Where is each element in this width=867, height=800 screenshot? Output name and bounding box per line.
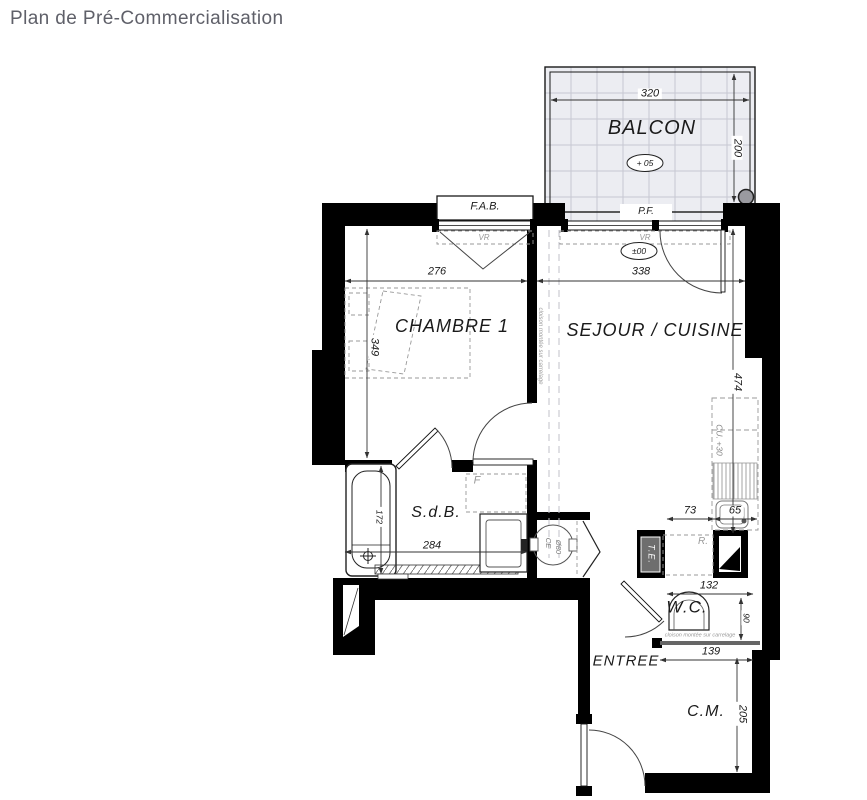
dim-entree-width: 139 (699, 647, 723, 658)
water-heater-label: CE (544, 538, 552, 548)
room-label-balcon: BALCON (608, 118, 696, 138)
door-wc (621, 581, 664, 637)
dim-chambre-height: 349 (369, 335, 380, 359)
dim-balcon-width: 320 (638, 89, 662, 100)
shutter-label-left: VR (478, 234, 489, 242)
room-label-cm: C.M. (687, 704, 725, 720)
opening-label-pf: P.F. (635, 207, 657, 217)
room-label-sdb: S.d.B. (411, 505, 461, 521)
level-main: ±00 (632, 247, 646, 256)
dim-kitchen-right: 65 (726, 506, 744, 517)
opening-label-fab: F.A.B. (470, 202, 499, 213)
room-label-entree: ENTREE (593, 654, 660, 669)
room-label-chambre: CHAMBRE 1 (395, 317, 509, 335)
bathtub (346, 464, 396, 576)
page-title: Plan de Pré-Commercialisation (10, 8, 283, 30)
partition-note-horizontal: cloison montée sur carrelage (665, 633, 736, 639)
closet-label: F (474, 476, 481, 487)
dim-sejour-width: 338 (629, 267, 653, 278)
tiled-partition-line (660, 641, 760, 645)
dim-sejour-height: 474 (732, 370, 743, 394)
room-label-wc: W.C. (666, 599, 707, 616)
kitchen-unit-label: CU. +30 (715, 424, 724, 455)
water-heater (530, 521, 600, 577)
dim-balcon-height: 200 (732, 136, 743, 160)
door-sdb (396, 428, 452, 469)
electrical-panel-label: T.E. (647, 544, 656, 564)
shutter-label-right: VR (639, 234, 650, 242)
level-balcon: + 05 (637, 159, 654, 168)
floor-plan-page: Plan de Pré-Commercialisation BALCON CHA… (0, 0, 867, 800)
fridge-label: R. (698, 537, 708, 547)
water-heater-diameter: Ø80 (554, 540, 562, 554)
dim-chambre-width: 276 (425, 267, 449, 278)
dim-sdb-width: 284 (420, 541, 444, 552)
dim-kitchen-left: 73 (681, 506, 699, 517)
rainwater-pipe-icon (739, 190, 754, 205)
room-label-sejour: SEJOUR / CUISINE (566, 321, 743, 339)
door-chambre (473, 403, 533, 465)
dim-bath-length: 172 (375, 507, 384, 527)
floor-plan-drawing (0, 0, 867, 800)
soffit-lines (549, 230, 559, 558)
duct-box (713, 530, 748, 578)
dim-wc-width: 132 (697, 581, 721, 592)
washbasin (480, 514, 527, 572)
dim-wc-depth: 90 (742, 610, 751, 625)
door-entrance (581, 724, 645, 786)
dim-cm-height: 205 (737, 702, 748, 726)
partition-note-vertical: cloison montée sur carrelage (537, 307, 543, 384)
